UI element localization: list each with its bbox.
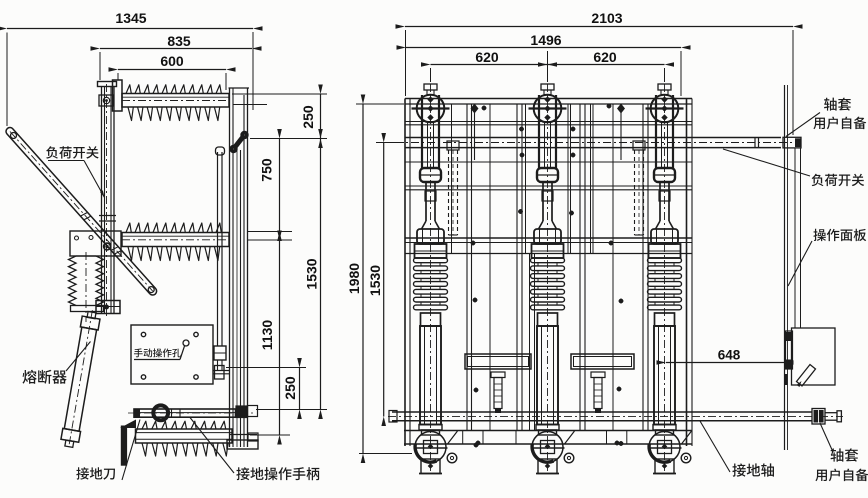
svg-text:2103: 2103 (591, 10, 622, 26)
svg-text:250: 250 (300, 105, 316, 129)
svg-text:835: 835 (167, 33, 191, 49)
svg-text:1530: 1530 (367, 265, 383, 296)
svg-text:648: 648 (718, 348, 741, 363)
svg-text:1530: 1530 (304, 258, 320, 289)
svg-text:1345: 1345 (115, 10, 146, 26)
svg-text:600: 600 (160, 53, 184, 69)
svg-text:620: 620 (475, 49, 499, 65)
svg-text:620: 620 (593, 49, 617, 65)
svg-text:250: 250 (282, 376, 298, 400)
svg-text:1496: 1496 (530, 32, 561, 48)
svg-text:750: 750 (259, 158, 275, 182)
svg-text:1980: 1980 (346, 263, 362, 294)
svg-text:1130: 1130 (259, 320, 275, 351)
